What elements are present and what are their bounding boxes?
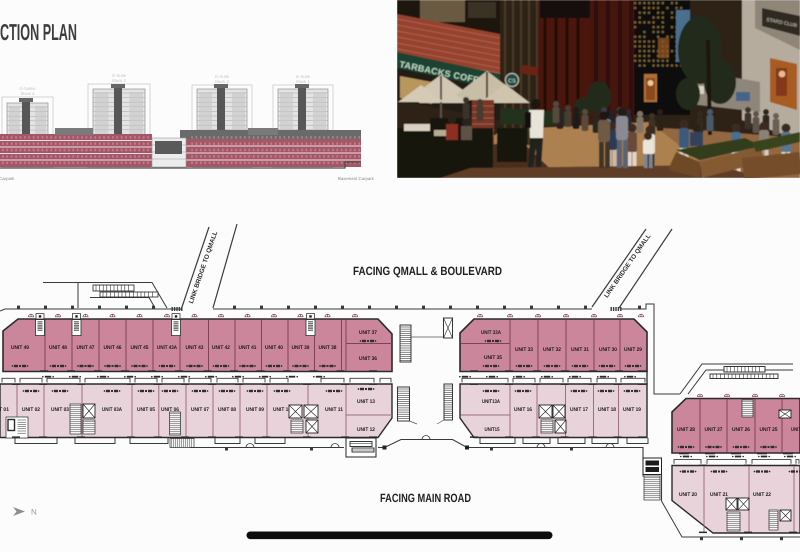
- svg-text:UNIT 33: UNIT 33: [515, 347, 533, 353]
- svg-text:UNIT 26: UNIT 26: [732, 427, 750, 433]
- svg-text:UNIT 05: UNIT 05: [137, 407, 155, 413]
- svg-text:CS: CS: [508, 79, 516, 85]
- svg-text:UNIT 45: UNIT 45: [131, 345, 149, 351]
- svg-text:UNIT 32: UNIT 32: [543, 347, 561, 353]
- svg-text:UNIT 38: UNIT 38: [319, 345, 337, 351]
- svg-text:CTION PLAN: CTION PLAN: [0, 19, 77, 45]
- svg-text:UNIT 13: UNIT 13: [357, 399, 375, 405]
- svg-text:UNIT 21: UNIT 21: [710, 492, 728, 498]
- svg-text:UNIT 22: UNIT 22: [753, 492, 771, 498]
- svg-text:FACING QMALL & BOULEVARD: FACING QMALL & BOULEVARD: [353, 264, 502, 278]
- svg-text:UNIT 39: UNIT 39: [292, 345, 310, 351]
- svg-text:UNIT 31: UNIT 31: [571, 347, 589, 353]
- svg-text:UNIT 47: UNIT 47: [77, 345, 95, 351]
- svg-text:UNIT 37: UNIT 37: [359, 330, 377, 336]
- svg-text:Block 1: Block 1: [296, 79, 310, 84]
- svg-text:UNIT 03: UNIT 03: [51, 407, 69, 413]
- svg-text:UNIT 08: UNIT 08: [218, 407, 236, 413]
- svg-text:UNIT 40: UNIT 40: [265, 345, 283, 351]
- svg-text:T 01: T 01: [0, 407, 9, 413]
- svg-text:UNIT 02: UNIT 02: [22, 407, 40, 413]
- svg-text:Block 2: Block 2: [215, 79, 229, 84]
- svg-text:UNIT 20: UNIT 20: [679, 492, 697, 498]
- svg-text:UNIT 46: UNIT 46: [104, 345, 122, 351]
- svg-text:UNIT 43: UNIT 43: [186, 345, 204, 351]
- svg-text:UNIT 28: UNIT 28: [677, 427, 695, 433]
- svg-text:UNIT 16: UNIT 16: [514, 407, 532, 413]
- svg-text:UNIT 19: UNIT 19: [623, 407, 641, 413]
- svg-text:FACING MAIN ROAD: FACING MAIN ROAD: [380, 491, 471, 505]
- svg-text:N: N: [31, 508, 37, 517]
- svg-text:UNIT 09: UNIT 09: [246, 407, 264, 413]
- svg-text:UNIT 43A: UNIT 43A: [157, 345, 177, 351]
- svg-text:UNIT 10: UNIT 10: [273, 407, 291, 413]
- svg-text:UNIT 41: UNIT 41: [239, 345, 257, 351]
- svg-text:UNIT 25: UNIT 25: [760, 427, 778, 433]
- svg-text:Block 3: Block 3: [112, 78, 126, 83]
- svg-text:Basement Carpark: Basement Carpark: [338, 176, 375, 181]
- svg-text:UNIT 18: UNIT 18: [598, 407, 616, 413]
- svg-text:UNIT 42: UNIT 42: [212, 345, 230, 351]
- svg-text:ent Carpark: ent Carpark: [0, 176, 15, 181]
- svg-text:UNIT 35: UNIT 35: [484, 355, 502, 361]
- svg-text:UNIT 48: UNIT 48: [49, 345, 67, 351]
- svg-text:UNIT 07: UNIT 07: [191, 407, 209, 413]
- svg-text:UNIT 12: UNIT 12: [357, 427, 375, 433]
- svg-text:UNIT 27: UNIT 27: [705, 427, 723, 433]
- svg-text:UNIT 03A: UNIT 03A: [102, 407, 122, 413]
- svg-text:UNIT 36: UNIT 36: [359, 356, 377, 362]
- svg-text:UNIT 29: UNIT 29: [624, 347, 642, 353]
- svg-text:UNIT 11: UNIT 11: [325, 407, 343, 413]
- svg-text:UNIT 17: UNIT 17: [570, 407, 588, 413]
- svg-text:UNIT13A: UNIT13A: [482, 399, 500, 405]
- svg-text:UNIT: UNIT: [791, 427, 800, 433]
- svg-text:UNIT 30: UNIT 30: [599, 347, 617, 353]
- svg-text:UNIT 49: UNIT 49: [11, 345, 29, 351]
- svg-text:Block 4: Block 4: [21, 91, 35, 96]
- svg-text:UNIT15: UNIT15: [485, 427, 500, 433]
- svg-text:LINK BRIDGE TO QMALL: LINK BRIDGE TO QMALL: [603, 233, 652, 299]
- svg-text:UNIT 33A: UNIT 33A: [481, 330, 501, 336]
